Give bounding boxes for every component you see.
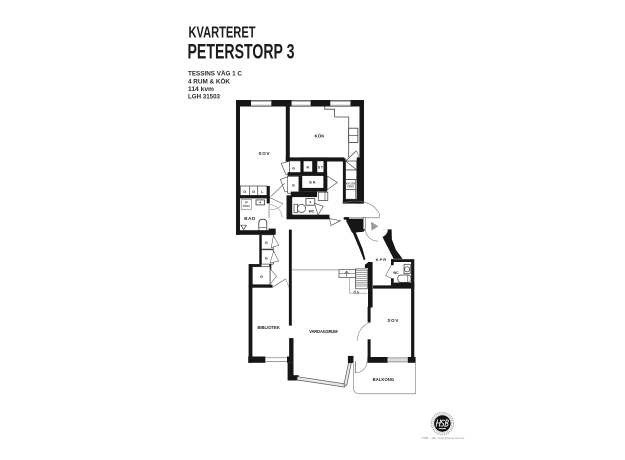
svg-text:TESSINS VÄG 1 C: TESSINS VÄG 1 C [188,70,242,78]
svg-text:G: G [292,166,295,170]
svg-text:VARDAGSRUM: VARDAGSRUM [309,329,338,334]
svg-text:KVARTERET: KVARTERET [189,25,256,42]
svg-text:BALKONG: BALKONG [373,377,395,382]
svg-text:G: G [260,275,263,279]
svg-text:G: G [243,190,246,194]
svg-text:SK: SK [309,180,316,185]
svg-text:WC: WC [309,210,315,214]
svg-text:G: G [292,184,295,188]
svg-text:114 kvm: 114 kvm [188,86,214,93]
svg-text:G: G [265,241,268,245]
svg-text:BIBLIOTEK: BIBLIOTEK [257,325,280,330]
svg-text:TP: TP [245,200,249,204]
svg-text:BAD: BAD [244,216,256,221]
svg-text:G: G [265,256,268,260]
svg-text:G: G [252,190,255,194]
svg-text:PETERSTORP 3: PETERSTORP 3 [188,41,295,64]
svg-text:4 RUM & KÖK: 4 RUM & KÖK [188,76,230,85]
svg-text:FRYS: FRYS [347,185,354,189]
svg-text:L: L [261,190,263,194]
svg-text:KÖK: KÖK [315,133,326,139]
svg-text:WC: WC [393,271,399,275]
svg-text:K: K [306,165,309,170]
svg-text:LGH 31503: LGH 31503 [188,94,220,101]
svg-text:SOV: SOV [259,151,270,156]
svg-text:HSB - där möjligheterna bor: HSB - där möjligheterna bor [421,436,464,440]
svg-text:KPR: KPR [376,257,387,262]
svg-text:Ö.S: Ö.S [353,289,359,294]
svg-text:SOV: SOV [387,318,398,323]
